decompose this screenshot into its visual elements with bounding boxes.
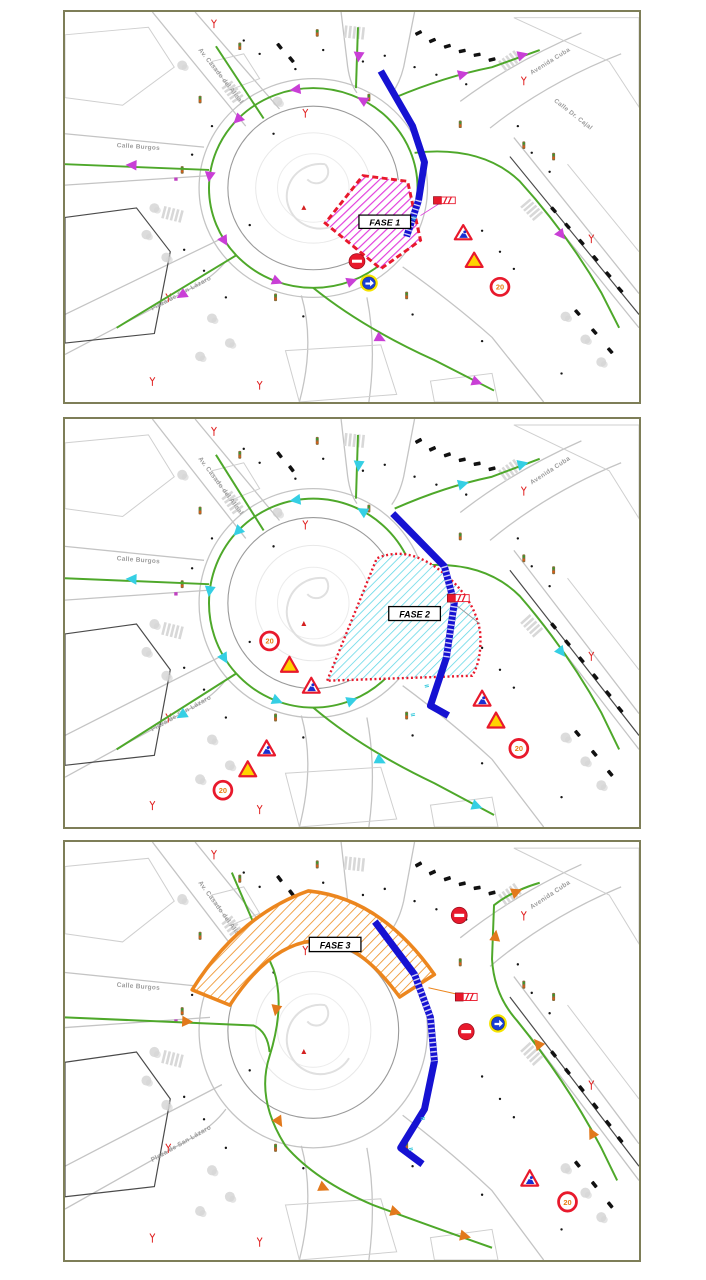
phase-3-map: FASE 3 II II [65, 842, 639, 1260]
lane-mark: II [423, 684, 430, 689]
speed-limit-20-sign-icon [261, 632, 279, 650]
no-entry-sign-icon [349, 254, 365, 269]
roadworks-warning-sign-icon [258, 740, 275, 755]
danger-warning-sign-icon [488, 713, 505, 728]
roadworks-warning-sign-icon [474, 691, 491, 706]
phase-1-plan-panel: FASE 1 31 Calle Dr. Cajal [63, 10, 641, 404]
no-entry-sign-icon [451, 907, 467, 923]
works-truck-icon [455, 993, 477, 1001]
phase-2-map: FASE 2 II II [65, 419, 639, 827]
phase-2-plan-panel: FASE 2 II II [63, 417, 641, 829]
speed-limit-20-sign-icon [214, 781, 232, 799]
roadworks-warning-sign-icon [303, 678, 320, 693]
svg-text:FASE 2: FASE 2 [399, 610, 430, 620]
mandatory-direction-sign-icon [360, 275, 378, 292]
danger-warning-sign-icon [466, 253, 483, 267]
speed-limit-20-sign-icon [491, 278, 509, 295]
phase-1-label: FASE 1 [359, 215, 411, 228]
lane-mark: II [409, 713, 416, 718]
roadworks-warning-sign-icon [455, 225, 472, 239]
lane-mark: II [419, 1117, 425, 1122]
mandatory-direction-sign-icon [489, 1014, 507, 1032]
no-entry-sign-icon [458, 1023, 474, 1039]
phase-2-label: FASE 2 [389, 607, 441, 621]
roadworks-warning-sign-icon [521, 1170, 538, 1185]
plan-sheet: FASE 1 31 Calle Dr. Cajal [0, 0, 706, 1280]
phase-3-plan-panel: FASE 3 II II [63, 840, 641, 1262]
danger-warning-sign-icon [239, 761, 256, 776]
phase-1-map: FASE 1 31 Calle Dr. Cajal [65, 12, 639, 402]
svg-text:FASE 1: FASE 1 [369, 218, 400, 228]
phase-3-label: FASE 3 [309, 937, 361, 951]
works-truck-icon [447, 594, 469, 602]
svg-text:FASE 3: FASE 3 [320, 940, 351, 950]
danger-warning-sign-icon [281, 657, 298, 672]
speed-limit-20-sign-icon [559, 1193, 577, 1211]
speed-limit-20-sign-icon [510, 739, 528, 757]
works-truck-icon [433, 197, 455, 205]
street-label-calle-dr-cajal: Calle Dr. Cajal [552, 98, 593, 132]
